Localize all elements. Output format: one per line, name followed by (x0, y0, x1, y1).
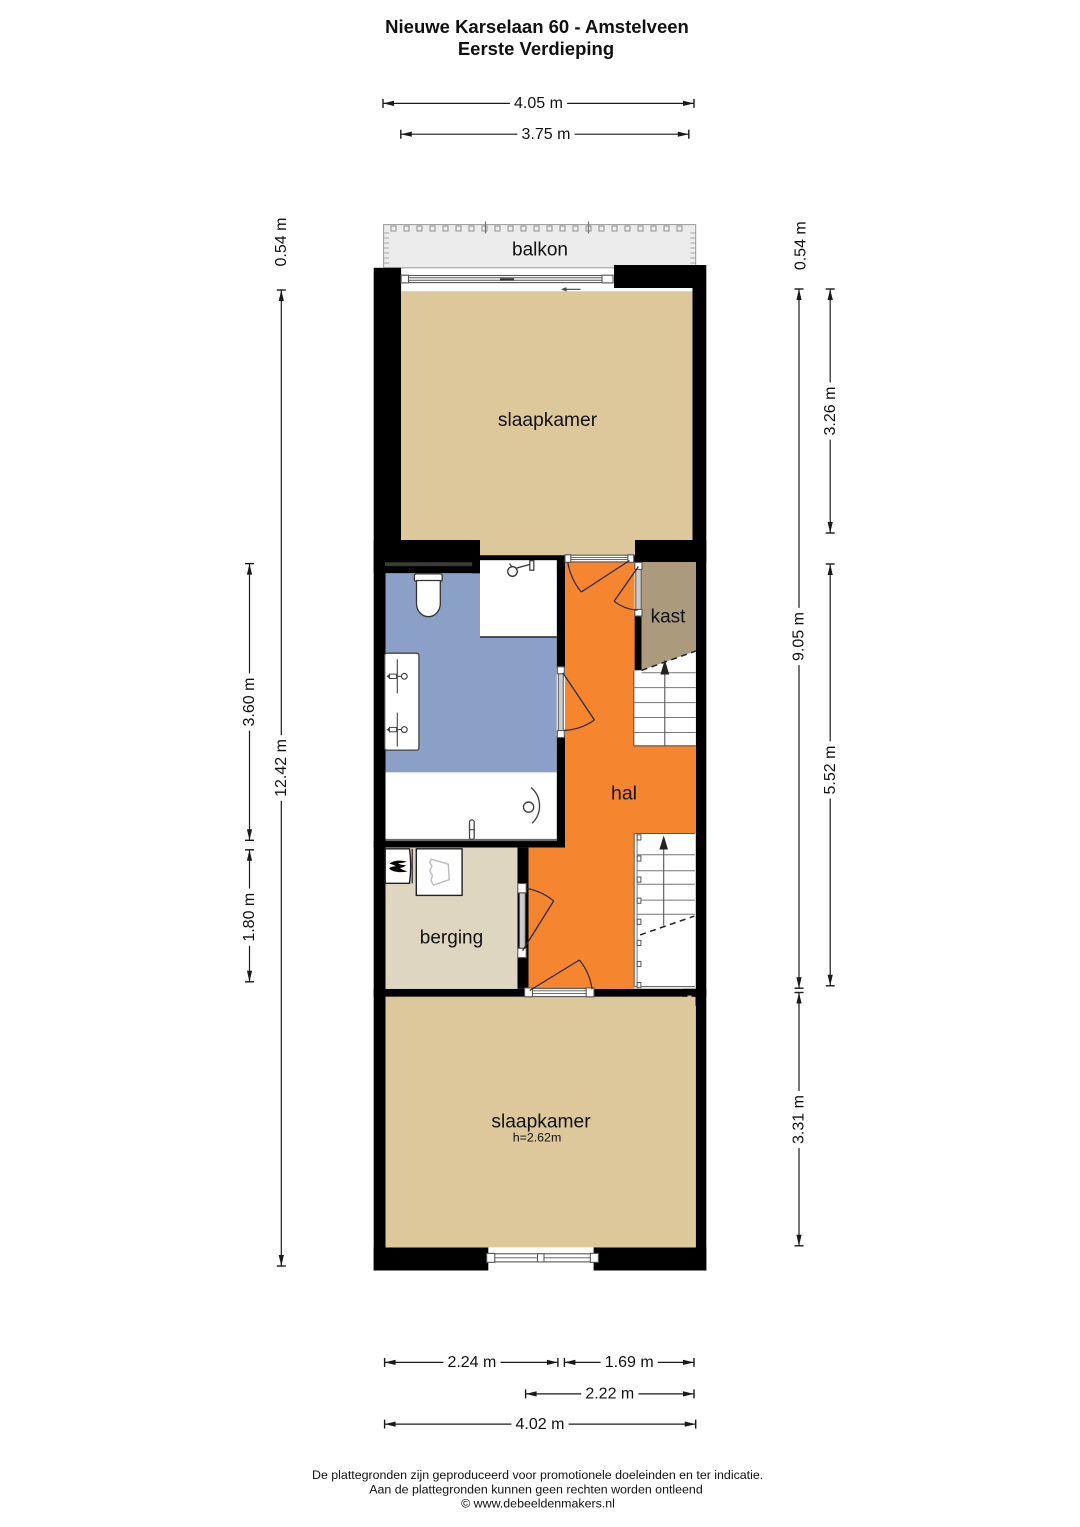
svg-text:Nieuwe Karselaan 60 - Amstelve: Nieuwe Karselaan 60 - Amstelveen (385, 16, 689, 37)
svg-text:h=2.62m: h=2.62m (513, 1130, 562, 1144)
svg-text:Eerste Verdieping: Eerste Verdieping (458, 38, 614, 59)
svg-text:12.42 m: 12.42 m (273, 739, 290, 797)
svg-text:4.05 m: 4.05 m (514, 95, 563, 112)
svg-text:2.22 m: 2.22 m (585, 1386, 634, 1403)
svg-text:De plattegronden zijn geproduc: De plattegronden zijn geproduceerd voor … (312, 1468, 763, 1482)
svg-text:5.52 m: 5.52 m (822, 746, 839, 795)
svg-text:0.54 m: 0.54 m (792, 221, 809, 270)
svg-text:Aan de plattegronden kunnen ge: Aan de plattegronden kunnen geen rechten… (369, 1482, 703, 1496)
svg-text:9.05 m: 9.05 m (791, 612, 808, 661)
svg-text:2.24 m: 2.24 m (447, 1354, 496, 1371)
svg-text:slaapkamer: slaapkamer (498, 410, 598, 431)
svg-text:0.54 m: 0.54 m (273, 218, 290, 267)
svg-text:3.31 m: 3.31 m (791, 1095, 808, 1144)
svg-text:1.69 m: 1.69 m (605, 1354, 654, 1371)
svg-text:4.02 m: 4.02 m (516, 1416, 565, 1433)
svg-text:balkon: balkon (512, 240, 568, 261)
svg-text:kast: kast (651, 607, 687, 628)
svg-text:© www.debeeldenmakers.nl: © www.debeeldenmakers.nl (461, 1496, 615, 1510)
svg-text:3.60 m: 3.60 m (241, 678, 258, 727)
svg-text:1.80 m: 1.80 m (241, 893, 258, 942)
svg-text:3.75 m: 3.75 m (522, 126, 571, 143)
svg-text:hal: hal (611, 783, 637, 805)
svg-text:3.26 m: 3.26 m (822, 387, 839, 436)
svg-text:berging: berging (420, 928, 483, 949)
